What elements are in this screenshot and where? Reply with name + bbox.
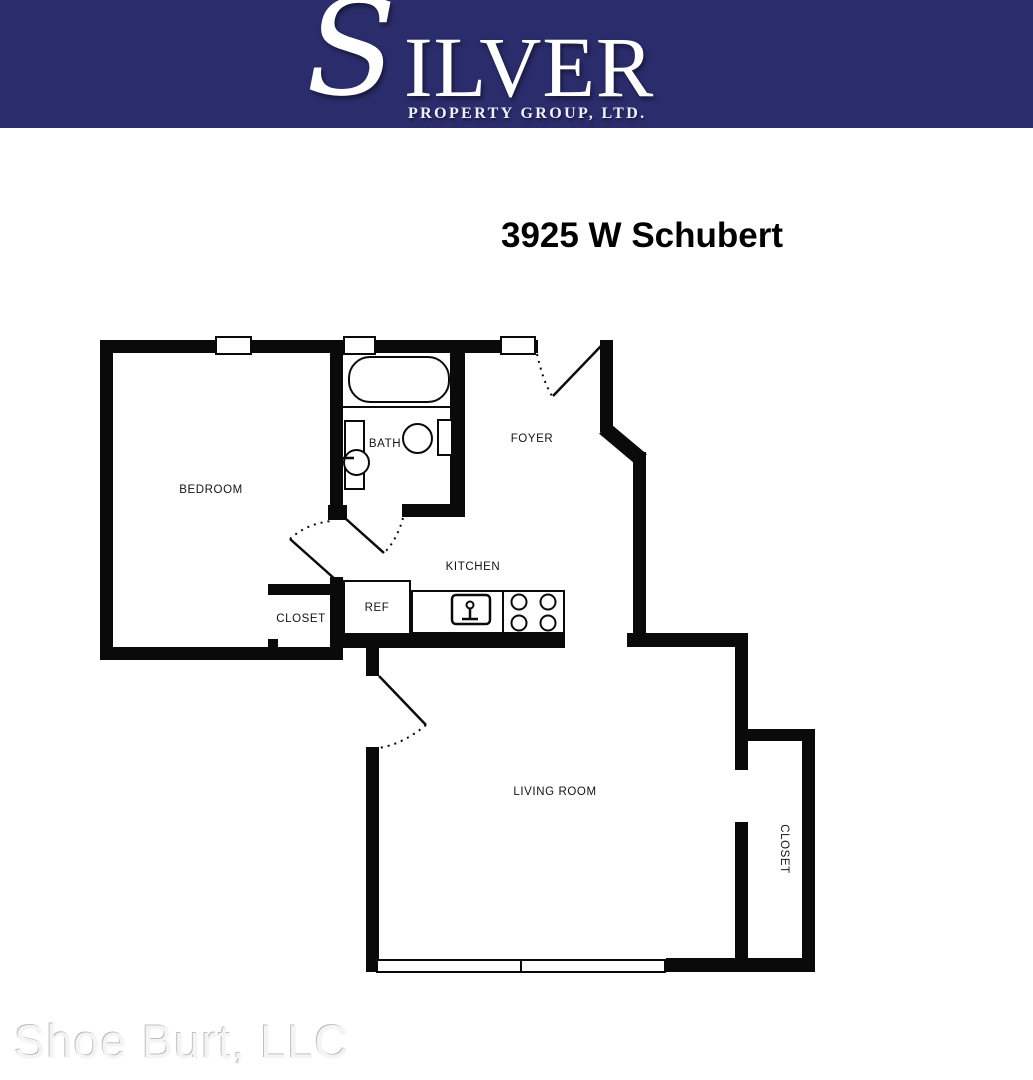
- wall-lr-closet-east: [802, 729, 815, 972]
- door-swing-arc: [537, 354, 552, 396]
- label-living-room: LIVING ROOM: [513, 786, 596, 798]
- logo-subtitle: PROPERTY GROUP, LTD.: [408, 105, 647, 123]
- window-bedroom: [215, 336, 252, 355]
- bath-door: [346, 518, 403, 553]
- floorplan-page: S ILVER PROPERTY GROUP, LTD. 3925 W Schu…: [0, 0, 1033, 1080]
- header-banner: S ILVER PROPERTY GROUP, LTD.: [0, 0, 1033, 128]
- label-living-room-closet: CLOSET: [778, 824, 790, 874]
- wall-lr-closet-west-upper: [735, 633, 748, 770]
- logo-wordmark: ILVER: [404, 24, 654, 110]
- wall-top: [100, 340, 538, 353]
- wall-bath-south: [402, 504, 465, 517]
- wall-bath-west-jamb: [328, 505, 347, 520]
- label-kitchen: KITCHEN: [446, 561, 501, 573]
- property-address-title: 3925 W Schubert: [501, 216, 783, 256]
- door-swing-arc: [384, 518, 403, 553]
- toilet-tank: [437, 419, 453, 456]
- wall-foyer-south: [627, 633, 748, 647]
- door-leaf: [553, 346, 601, 396]
- door-leaf: [379, 676, 426, 725]
- wall-kitchen-south: [330, 634, 565, 648]
- label-foyer: FOYER: [511, 433, 554, 445]
- living-room-door: [379, 676, 426, 748]
- window-living-room-right: [520, 959, 666, 973]
- wall-lr-west-lower: [366, 747, 379, 972]
- label-bedroom-closet: CLOSET: [276, 613, 326, 625]
- wall-lr-closet-west-lower: [735, 822, 748, 972]
- label-refrigerator: REF: [365, 602, 390, 614]
- bedroom-door: [290, 521, 336, 580]
- kitchen-counter: [411, 590, 565, 634]
- wall-west: [100, 340, 113, 660]
- wall-bath-west: [330, 340, 343, 505]
- wall-bedroom-south: [100, 647, 343, 660]
- door-leaf: [290, 539, 336, 580]
- wall-lr-west-stub: [366, 647, 379, 676]
- toilet-bowl: [402, 423, 433, 454]
- door-leaf: [346, 519, 384, 553]
- label-bath: BATH: [369, 438, 401, 450]
- label-bedroom: BEDROOM: [179, 484, 243, 496]
- door-swing-arc: [290, 521, 331, 539]
- bath-sink-bowl: [343, 449, 370, 476]
- wall-foyer-east-lower: [633, 452, 646, 642]
- wall-bedroom-closet-stub: [268, 639, 278, 648]
- silver-property-group-logo: S ILVER PROPERTY GROUP, LTD.: [0, 0, 1033, 128]
- window-living-room-left: [376, 959, 522, 973]
- window-foyer: [500, 336, 536, 355]
- bathtub: [348, 356, 450, 403]
- doors-and-details-overlay: [0, 0, 1033, 1080]
- watermark-text: Shoe Burt, LLC: [14, 1014, 349, 1069]
- entry-door: [537, 346, 601, 396]
- wall-foyer-east-upper: [600, 340, 613, 432]
- logo-script-s: S: [306, 0, 396, 128]
- wall-lr-south-east: [666, 958, 815, 972]
- window-bath: [343, 336, 376, 355]
- door-swing-arc: [379, 725, 426, 748]
